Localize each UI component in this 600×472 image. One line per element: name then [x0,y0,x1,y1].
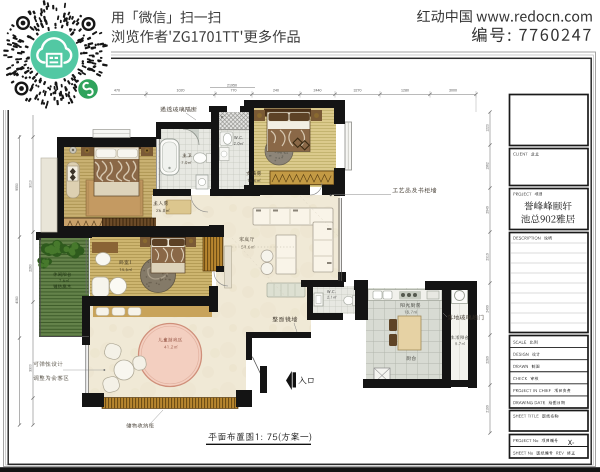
svg-text:3010: 3010 [28,180,32,188]
svg-text:1020: 1020 [177,89,185,93]
svg-text:1223: 1223 [486,124,490,132]
svg-text:2260: 2260 [28,264,32,272]
svg-text:2040: 2040 [486,206,490,214]
svg-text:3000: 3000 [449,89,457,93]
svg-text:9550: 9550 [15,183,19,191]
svg-text:2400: 2400 [486,305,490,313]
svg-text:4060: 4060 [15,296,19,304]
svg-text:470: 470 [114,89,120,93]
svg-text:2310: 2310 [486,253,490,261]
svg-text:3270: 3270 [354,89,362,93]
svg-text:21950: 21950 [227,83,237,87]
svg-text:770: 770 [231,89,237,93]
svg-text:3300: 3300 [28,364,32,372]
svg-text:2280: 2280 [486,356,490,364]
svg-text:240: 240 [273,89,279,93]
svg-text:1962: 1962 [486,162,490,170]
svg-text:1280: 1280 [401,89,409,93]
svg-text:2190: 2190 [486,405,490,413]
svg-text:2440: 2440 [314,89,322,93]
